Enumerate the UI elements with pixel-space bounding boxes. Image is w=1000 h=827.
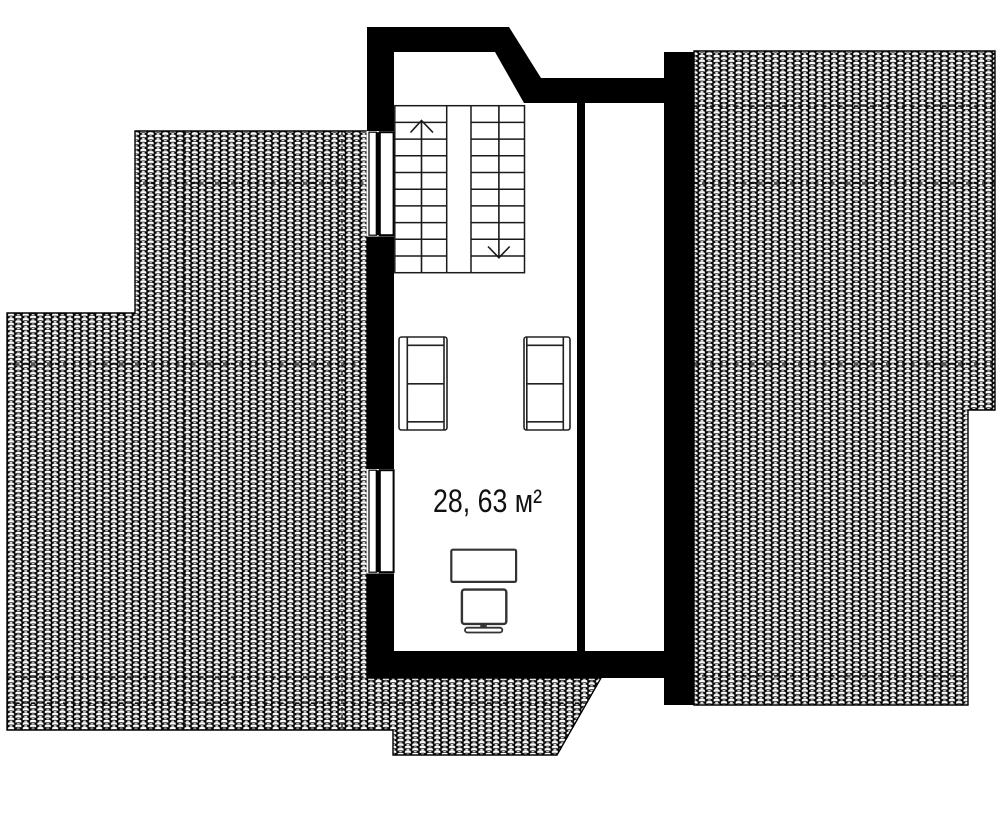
svg-text:28, 63 м²: 28, 63 м² bbox=[433, 483, 542, 519]
